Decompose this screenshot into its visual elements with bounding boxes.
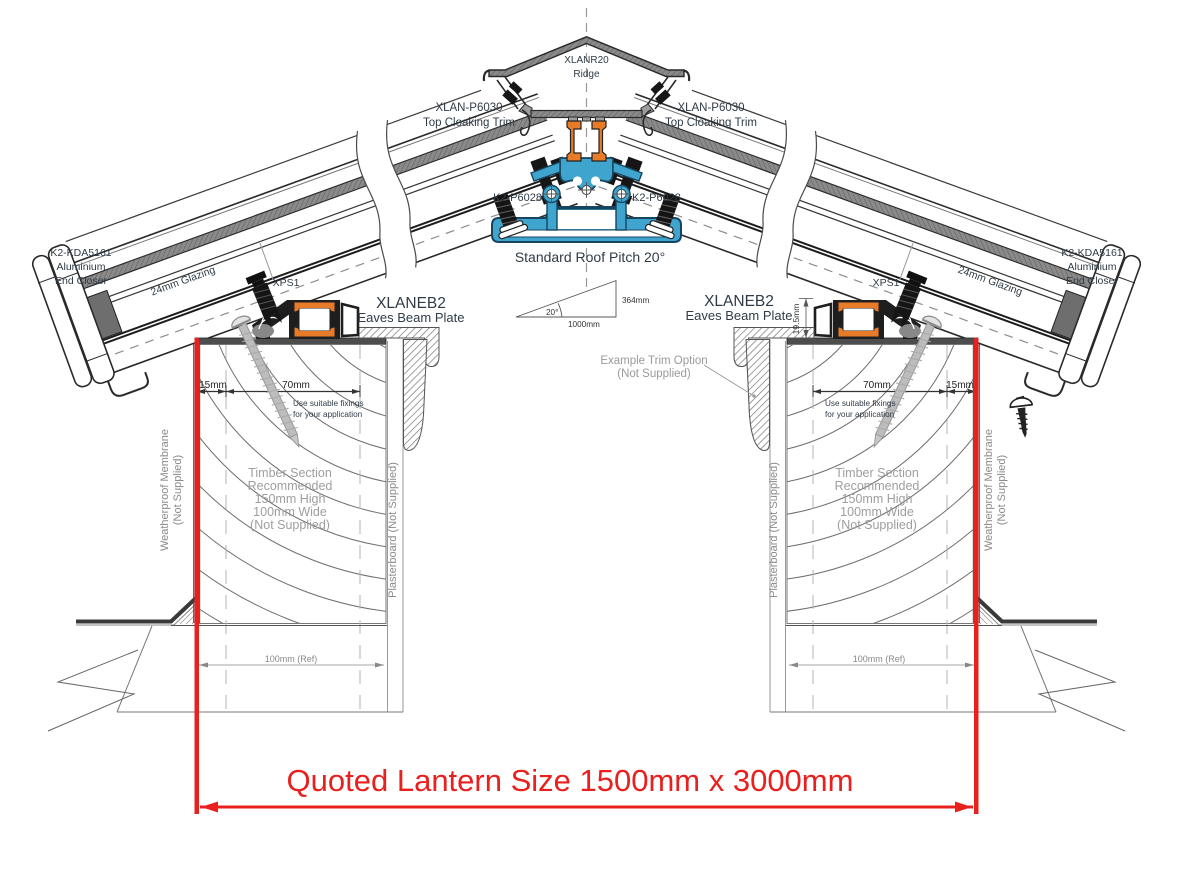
- svg-text:Ridge: Ridge: [573, 69, 600, 80]
- svg-text:for your application: for your application: [293, 410, 363, 419]
- svg-text:Eaves Beam Plate: Eaves Beam Plate: [686, 308, 793, 323]
- svg-text:Example Trim Option: Example Trim Option: [600, 355, 707, 367]
- svg-text:100mm Wide: 100mm Wide: [253, 505, 327, 519]
- svg-text:364mm: 364mm: [622, 296, 649, 305]
- svg-text:K2-KDA5161: K2-KDA5161: [1061, 247, 1122, 259]
- svg-text:Recommended: Recommended: [835, 479, 920, 493]
- svg-text:K2-P6028: K2-P6028: [632, 192, 681, 204]
- svg-text:(Not Supplied): (Not Supplied): [837, 518, 917, 532]
- svg-text:XPS1: XPS1: [873, 277, 900, 289]
- svg-text:Quoted Lantern Size 1500mm x 3: Quoted Lantern Size 1500mm x 3000mm: [287, 763, 854, 798]
- svg-text:20°: 20°: [546, 308, 558, 317]
- svg-text:Weatherproof Membrane: Weatherproof Membrane: [983, 429, 995, 551]
- svg-text:End Closer: End Closer: [55, 275, 107, 287]
- svg-text:for your application: for your application: [825, 410, 895, 419]
- svg-text:15mm: 15mm: [946, 380, 974, 391]
- svg-text:End Closer: End Closer: [1066, 275, 1118, 287]
- svg-text:Aluminium: Aluminium: [56, 261, 105, 273]
- svg-text:(Not Supplied): (Not Supplied): [996, 455, 1008, 525]
- svg-text:K2-KDA5161: K2-KDA5161: [50, 247, 111, 259]
- svg-text:Use suitable fixings: Use suitable fixings: [293, 399, 364, 408]
- svg-text:(Not Supplied): (Not Supplied): [617, 368, 691, 380]
- svg-text:15mm: 15mm: [199, 380, 227, 391]
- svg-text:Top Cloaking Trim: Top Cloaking Trim: [665, 117, 757, 129]
- svg-text:100mm (Ref): 100mm (Ref): [265, 654, 318, 664]
- svg-text:XLAN-P6030: XLAN-P6030: [677, 102, 744, 114]
- svg-text:Use suitable fixings: Use suitable fixings: [825, 399, 896, 408]
- svg-text:Standard Roof Pitch 20°: Standard Roof Pitch 20°: [515, 249, 665, 265]
- svg-text:100mm Wide: 100mm Wide: [840, 505, 914, 519]
- svg-text:Plasterboard (Not Supplied): Plasterboard (Not Supplied): [768, 462, 780, 598]
- svg-text:70mm: 70mm: [282, 380, 310, 391]
- svg-text:Plasterboard (Not Supplied): Plasterboard (Not Supplied): [387, 462, 399, 598]
- svg-text:70mm: 70mm: [863, 380, 891, 391]
- svg-text:K2-P6028: K2-P6028: [493, 192, 542, 204]
- svg-text:Weatherproof Membrane: Weatherproof Membrane: [159, 429, 171, 551]
- svg-text:XLAN-P6030: XLAN-P6030: [435, 102, 502, 114]
- svg-text:Recommended: Recommended: [248, 479, 333, 493]
- svg-text:1000mm: 1000mm: [568, 320, 600, 329]
- svg-text:Aluminium: Aluminium: [1067, 261, 1116, 273]
- svg-text:Timber Section: Timber Section: [835, 466, 919, 480]
- svg-text:Timber Section: Timber Section: [248, 466, 332, 480]
- svg-text:150mm High: 150mm High: [842, 492, 913, 506]
- svg-text:(Not Supplied): (Not Supplied): [250, 518, 330, 532]
- svg-text:19.5mm: 19.5mm: [791, 304, 801, 335]
- svg-text:(Not Supplied): (Not Supplied): [172, 455, 184, 525]
- svg-text:XPS1: XPS1: [273, 277, 300, 289]
- svg-text:150mm High: 150mm High: [255, 492, 326, 506]
- svg-text:Eaves Beam Plate: Eaves Beam Plate: [358, 310, 465, 325]
- svg-text:100mm (Ref): 100mm (Ref): [853, 654, 906, 664]
- svg-text:XLANR20: XLANR20: [564, 55, 609, 66]
- svg-text:Top Cloaking Trim: Top Cloaking Trim: [423, 117, 515, 129]
